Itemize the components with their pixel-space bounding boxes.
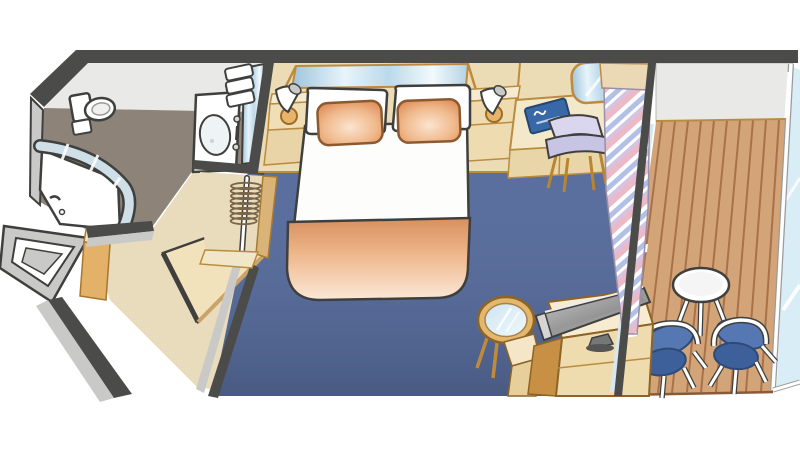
floorplan-svg: Balcony Glass balcony railing <box>0 0 800 450</box>
balcony-table-top-inner <box>679 272 723 296</box>
balcony-upper-zone <box>656 63 793 122</box>
pillow-accent-right: Accent pillow <box>397 99 460 143</box>
toilet-step <box>72 119 92 135</box>
stateroom-floorplan: Balcony Glass balcony railing <box>0 0 800 450</box>
faucet-handle <box>234 116 240 122</box>
faucet-handle <box>233 144 239 150</box>
nightstand-front <box>264 128 306 165</box>
entry-cabinet-front <box>80 242 110 300</box>
closet: Closet with hangers Clothes hangers on r… <box>192 160 277 268</box>
faucet-spout <box>236 126 237 140</box>
queen-bed: Queen bed Pillow Pillow Accent pillow Ac… <box>287 85 470 300</box>
foot-blanket: Bed runner blanket <box>287 218 470 300</box>
top-wall <box>76 50 798 63</box>
towels: Folded towels <box>221 64 259 108</box>
tv-stand-base <box>586 344 614 352</box>
closet-shelf <box>200 250 258 268</box>
pillow-accent-left: Accent pillow <box>317 100 383 145</box>
hangers: Clothes hangers on rail <box>230 183 261 224</box>
sink-drain <box>210 139 214 143</box>
shelf-unit: Shelf unit <box>0 226 88 302</box>
